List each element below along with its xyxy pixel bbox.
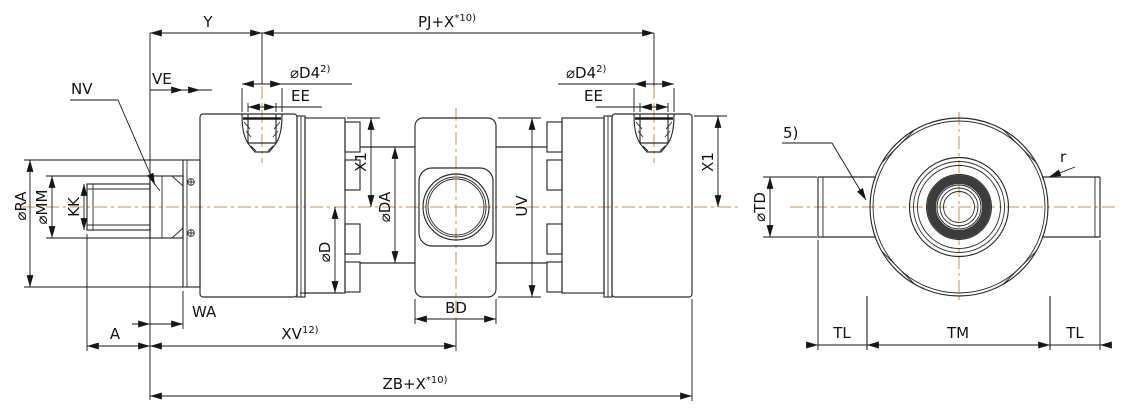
dim-label-tl-left: TL bbox=[832, 324, 851, 342]
tube-section-left bbox=[305, 118, 415, 293]
side-view bbox=[818, 118, 1100, 350]
right-cylinder-head bbox=[612, 114, 692, 297]
dim-xv: XV12) bbox=[150, 320, 456, 351]
dim-label-ve: VE bbox=[152, 70, 172, 88]
dim-ee-left: EE bbox=[248, 87, 322, 112]
dim-label-tl-right: TL bbox=[1065, 324, 1084, 342]
left-cylinder-head bbox=[200, 114, 305, 297]
dim-label-ee-left: EE bbox=[291, 87, 310, 105]
dim-label-ra: ⌀RA bbox=[12, 191, 30, 221]
piston-rod bbox=[87, 160, 200, 287]
dim-d: ⌀D bbox=[300, 207, 342, 293]
dim-label-da: ⌀DA bbox=[376, 191, 394, 222]
dim-label-bd: BD bbox=[445, 299, 467, 317]
dim-label-x1-right: X1 bbox=[699, 152, 717, 172]
leader-note5: 5) bbox=[782, 124, 866, 200]
note5-label: 5) bbox=[783, 124, 798, 142]
dim-label-pj: PJ+X*10) bbox=[418, 13, 476, 31]
dim-label-mm: ⌀MM bbox=[33, 190, 51, 225]
dim-label-d: ⌀D bbox=[316, 242, 334, 263]
dim-label-a: A bbox=[110, 325, 121, 343]
dim-label-uv: UV bbox=[513, 195, 531, 217]
dim-d4-right: ⌀D42) bbox=[558, 64, 674, 112]
dim-label-x1-left: X1 bbox=[352, 152, 370, 172]
dim-mm: ⌀MM bbox=[33, 176, 150, 238]
dim-label-xv: XV12) bbox=[281, 325, 318, 343]
dim-kk: KK bbox=[65, 184, 84, 230]
dim-ee-right: EE bbox=[584, 87, 668, 112]
dim-bd: BD bbox=[415, 299, 496, 324]
leader-nv: NV bbox=[70, 80, 155, 185]
dim-label-r: r bbox=[1060, 148, 1067, 166]
dim-label-y: Y bbox=[202, 13, 213, 31]
drawing-canvas: Y PJ+X*10) VE NV ⌀D42) EE ⌀D42) bbox=[0, 0, 1147, 408]
dim-da: ⌀DA bbox=[376, 147, 395, 263]
dim-zb: ZB+X*10) bbox=[150, 299, 692, 401]
dim-label-nv: NV bbox=[71, 80, 93, 98]
dim-label-kk: KK bbox=[65, 196, 83, 217]
dim-label-td: ⌀TD bbox=[751, 192, 769, 222]
dim-label-d4-left: ⌀D42) bbox=[290, 64, 330, 82]
leader-r: r bbox=[1049, 148, 1075, 177]
dim-label-wa: WA bbox=[192, 303, 217, 321]
technical-drawing: Y PJ+X*10) VE NV ⌀D42) EE ⌀D42) bbox=[0, 0, 1147, 408]
dim-ve: VE bbox=[150, 70, 212, 90]
dim-label-ee-right: EE bbox=[584, 87, 603, 105]
dim-label-zb: ZB+X*10) bbox=[382, 375, 447, 393]
dim-label-d4-right: ⌀D42) bbox=[566, 64, 606, 82]
dim-a: A bbox=[87, 234, 150, 351]
dim-label-tm: TM bbox=[946, 324, 969, 342]
dim-x1-right: X1 bbox=[694, 116, 727, 207]
